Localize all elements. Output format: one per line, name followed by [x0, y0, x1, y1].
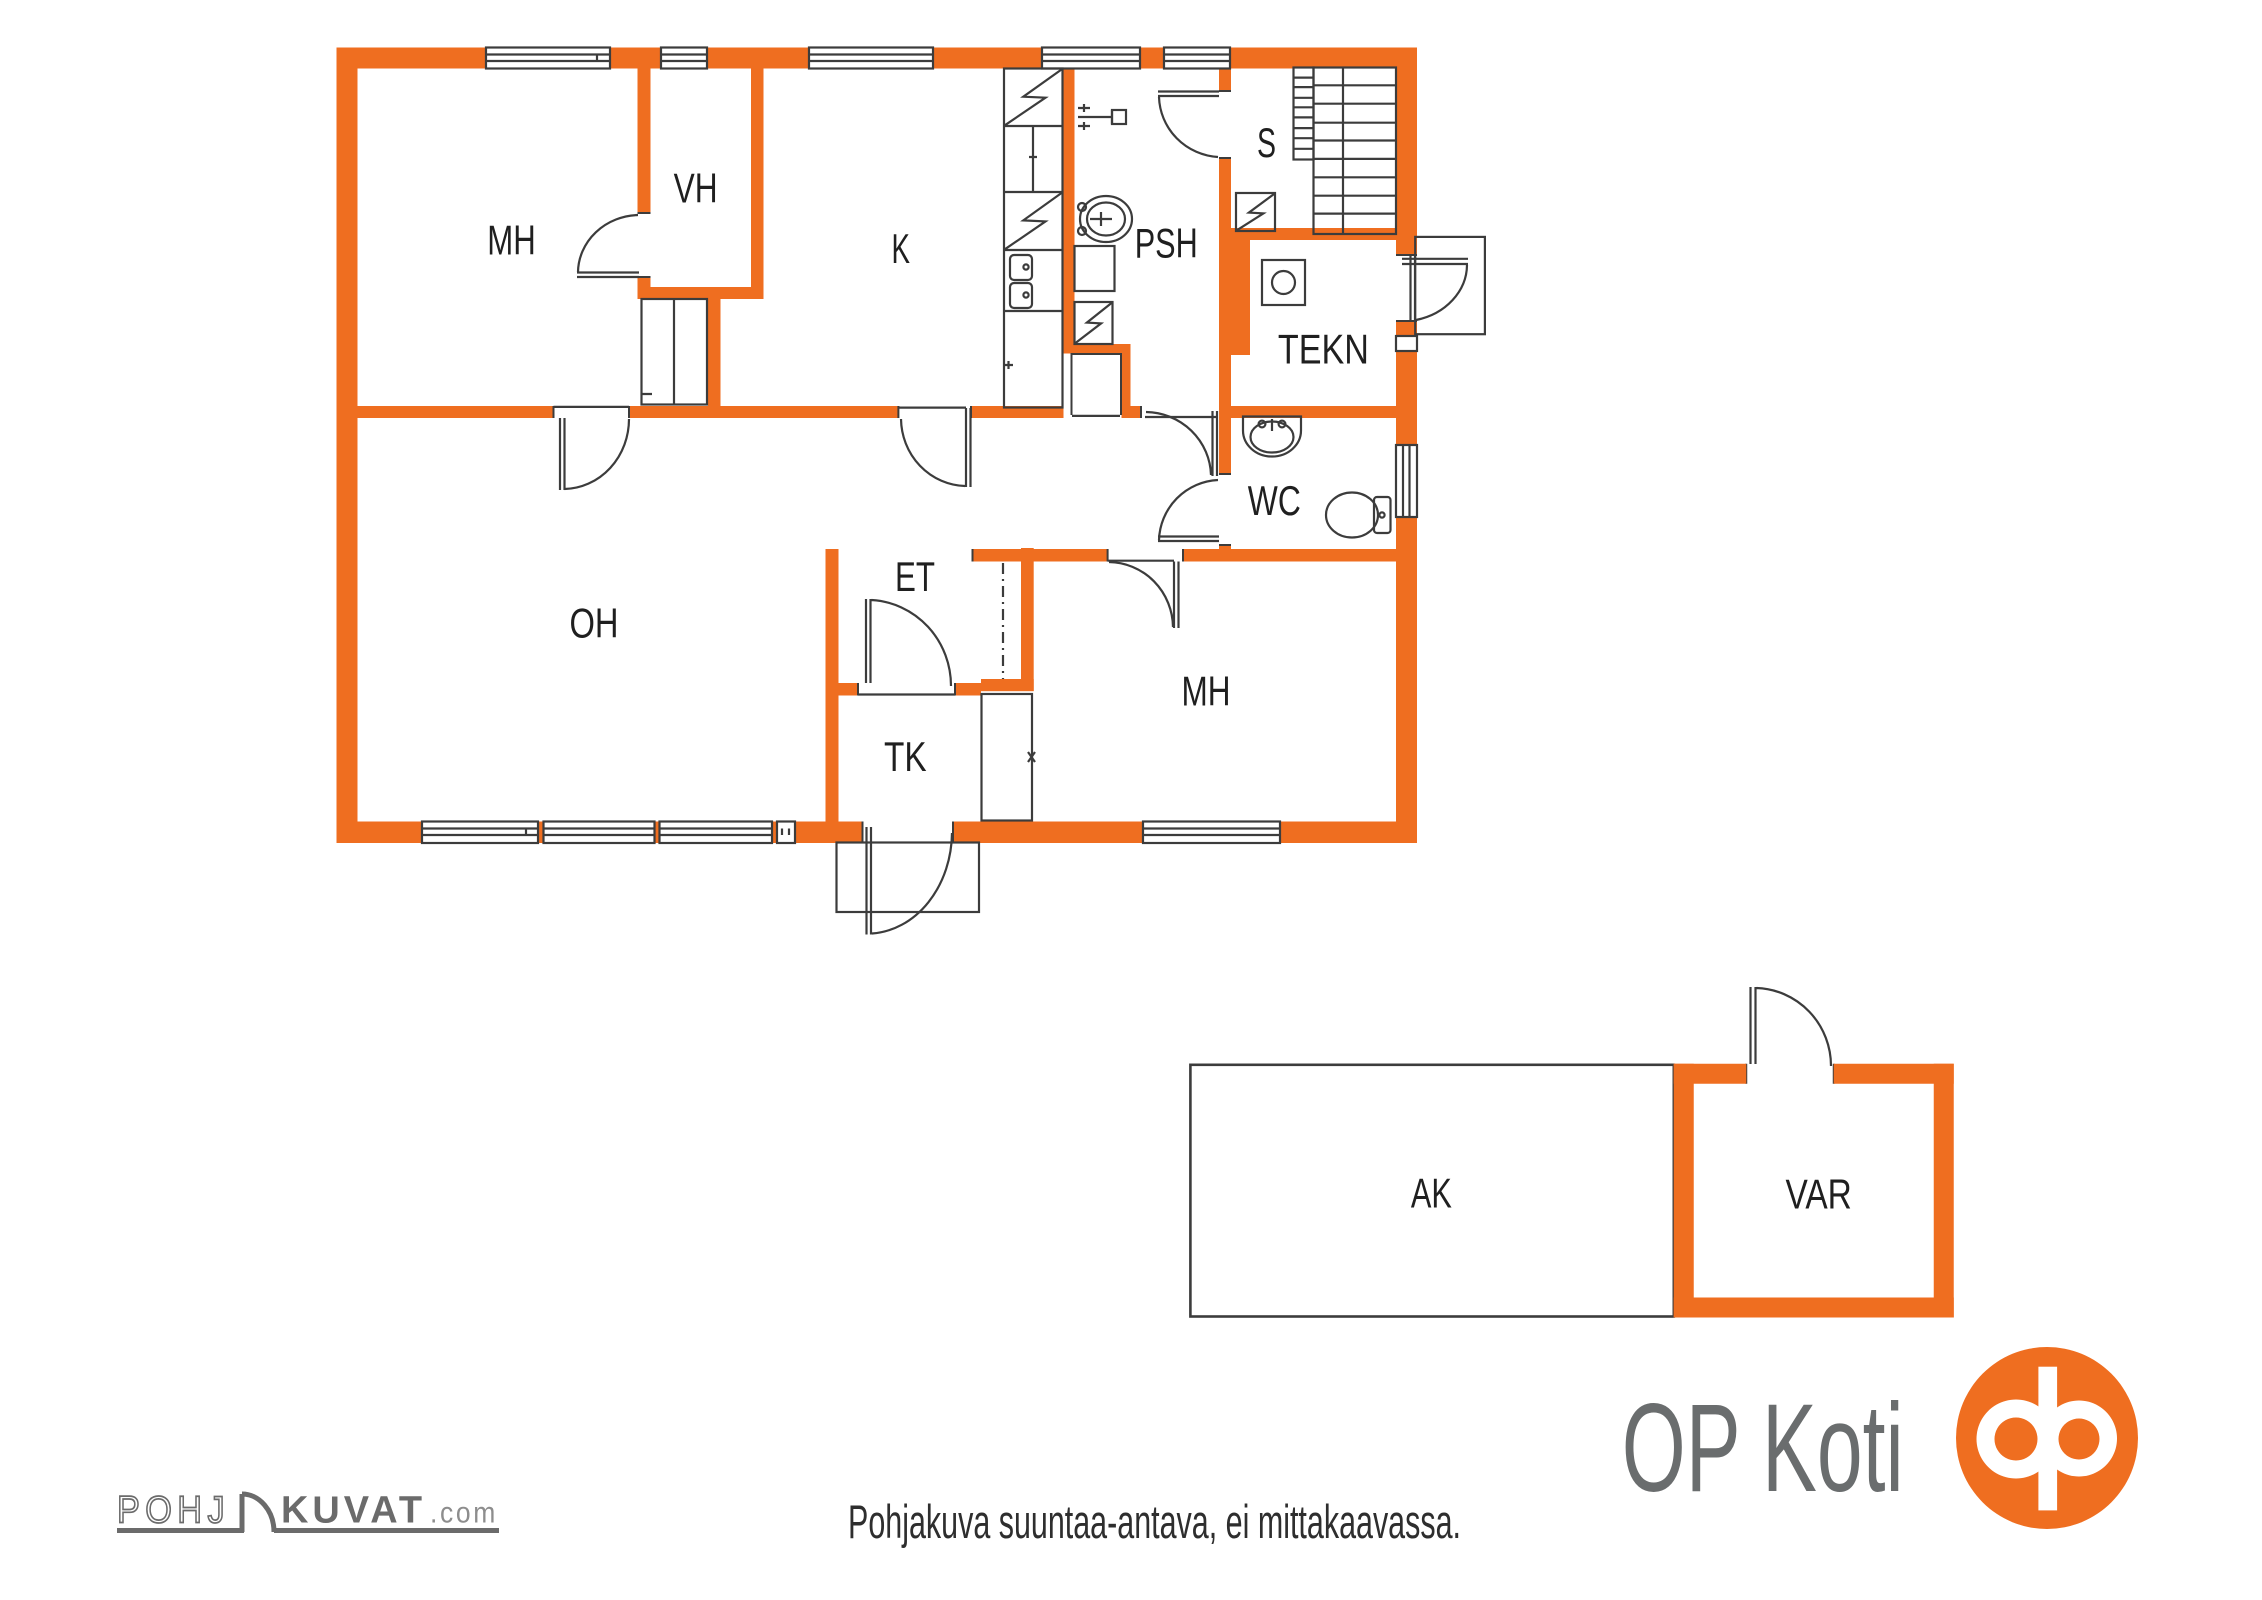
svg-text:KUVAT: KUVAT	[281, 1490, 426, 1532]
svg-text:K: K	[892, 225, 911, 272]
svg-text:Pohjakuva suuntaa-antava, ei m: Pohjakuva suuntaa-antava, ei mittakaavas…	[848, 1495, 1461, 1548]
svg-text:MH: MH	[1182, 668, 1231, 715]
svg-text:PSH: PSH	[1135, 219, 1198, 266]
svg-text:OH: OH	[570, 600, 619, 647]
svg-text:S: S	[1257, 119, 1276, 166]
svg-text:VAR: VAR	[1786, 1171, 1852, 1218]
svg-text:MH: MH	[487, 217, 536, 264]
svg-text:AK: AK	[1411, 1170, 1452, 1217]
svg-text:TK: TK	[884, 733, 927, 780]
svg-text:.com: .com	[430, 1497, 498, 1530]
svg-text:OP Koti: OP Koti	[1622, 1379, 1904, 1518]
svg-text:ET: ET	[895, 553, 935, 600]
svg-text:TEKN: TEKN	[1278, 326, 1369, 373]
svg-text:POHJ: POHJ	[117, 1490, 230, 1532]
svg-text:WC: WC	[1248, 477, 1301, 524]
svg-text:VH: VH	[674, 164, 718, 211]
